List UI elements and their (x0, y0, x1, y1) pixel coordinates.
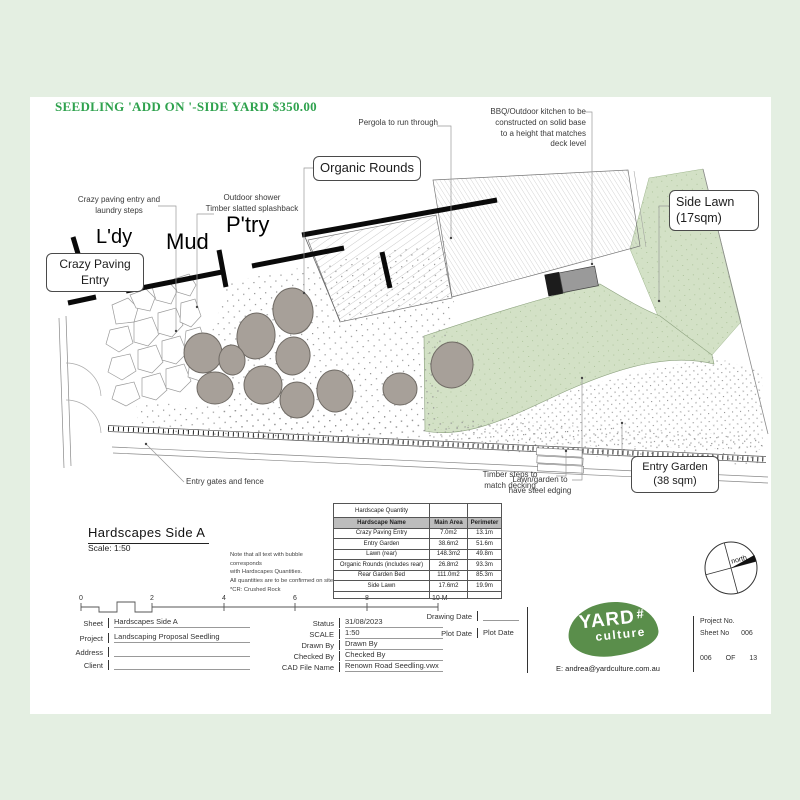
room-label-laundry: L'dy (96, 226, 132, 249)
field-cad-file: CAD File NameRenown Road Seedling.vwx (278, 661, 443, 672)
hardscape-quantity-table: Hardscape Quantity Hardscape Name Main A… (333, 503, 502, 599)
field-drawing-date: Drawing Date (422, 610, 519, 621)
field-client: Client (59, 659, 250, 670)
sheet-title: Hardscapes Side A (88, 525, 209, 544)
cell-perimeter: 13.1m (468, 528, 502, 539)
cell-area: 7.0m2 (430, 528, 468, 539)
table-col-header: Perimeter (468, 518, 502, 529)
field-value: Checked By (345, 650, 443, 661)
screenshot-stage: 0 2 4 6 8 10 M north SEEDLING 'ADD ON '-… (0, 0, 800, 800)
field-plot-date: Plot DatePlot Date (422, 628, 519, 638)
sheet-count-current: 006 (700, 655, 712, 662)
bubble-organic-rounds: Organic Rounds (313, 156, 421, 181)
cell-perimeter: 51.6m (468, 539, 502, 550)
field-value (114, 646, 250, 657)
cell-perimeter: 49.8m (468, 549, 502, 560)
table-row-empty (334, 591, 502, 598)
sheet-no-value: 006 (741, 630, 753, 637)
cell-area: 38.6m2 (430, 539, 468, 550)
field-value: Plot Date (483, 628, 519, 638)
field-address: Address (59, 646, 250, 657)
field-divider (339, 629, 340, 639)
field-divider (339, 662, 340, 672)
cell-perimeter: 93.3m (468, 560, 502, 571)
field-divider (339, 618, 340, 628)
sheet-count-row: 006 OF 13 (700, 655, 757, 662)
scale-tick-4: 4 (222, 595, 226, 602)
contact-email: E: andrea@yardculture.com.au (556, 664, 660, 673)
cell-area: 148.3m2 (430, 549, 468, 560)
titleblock-divider (693, 616, 694, 672)
field-divider (108, 618, 109, 628)
field-divider (108, 633, 109, 643)
cell-name: Crazy Paving Entry (334, 528, 430, 539)
scale-tick-2: 2 (150, 595, 154, 602)
room-label-pantry: P'try (226, 212, 269, 238)
cell-area: 111.0m2 (430, 570, 468, 581)
room-label-mud: Mud (166, 229, 209, 255)
field-divider (339, 640, 340, 650)
field-label: SCALE (278, 630, 334, 639)
annotation-outdoor-shower: Outdoor shower Timber slatted splashback (198, 193, 306, 215)
table-title-spacer (468, 504, 502, 518)
bubble-entry-garden: Entry Garden (38 sqm) (631, 456, 719, 493)
table-title: Hardscape Quantity (334, 504, 430, 518)
cell-perimeter: 19.9m (468, 581, 502, 592)
bubble-side-lawn: Side Lawn (17sqm) (669, 190, 759, 231)
table-row: Rear Garden Bed 111.0m2 85.3m (334, 570, 502, 581)
table-title-spacer (430, 504, 468, 518)
cell-name: Side Lawn (334, 581, 430, 592)
table-row: Lawn (rear) 148.3m2 49.8m (334, 549, 502, 560)
plan-notes: Note that all text with bubble correspon… (230, 551, 334, 594)
field-label: CAD File Name (278, 663, 334, 672)
annotation-crazy-paving: Crazy paving entry and laundry steps (70, 195, 168, 217)
field-label: Project (59, 634, 103, 643)
field-divider (339, 651, 340, 661)
cell-area: 17.6m2 (430, 581, 468, 592)
field-divider (477, 611, 478, 621)
sheet-count-total: 13 (749, 655, 757, 662)
field-divider (108, 647, 109, 657)
field-drawn-by: Drawn ByDrawn By (278, 639, 443, 650)
field-value: Landscaping Proposal Seedling (114, 632, 250, 643)
logo-hash-icon: # (636, 606, 646, 622)
field-value: Renown Road Seedling.vwx (345, 661, 443, 672)
field-value: Drawn By (345, 639, 443, 650)
field-value (114, 659, 250, 670)
page-title: SEEDLING 'ADD ON '-SIDE YARD $350.00 (55, 99, 317, 115)
bubble-crazy-paving-entry: Crazy Paving Entry (46, 253, 144, 292)
cell-name: Lawn (rear) (334, 549, 430, 560)
field-label: Sheet (59, 619, 103, 628)
table-row: Entry Garden 38.6m2 51.6m (334, 539, 502, 550)
project-no-label: Project No. (700, 618, 735, 625)
field-label: Drawn By (278, 641, 334, 650)
cell-area: 26.8m2 (430, 560, 468, 571)
annotation-bbq: BBQ/Outdoor kitchen to be constructed on… (478, 107, 586, 150)
field-label: Status (278, 619, 334, 628)
field-value (483, 610, 519, 621)
scale-tick-6: 6 (293, 595, 297, 602)
annotation-steel-edging: Lawn/garden to have steel edging (504, 475, 576, 497)
field-label: Address (59, 648, 103, 657)
table-row: Side Lawn 17.6m2 19.9m (334, 581, 502, 592)
field-label: Checked By (278, 652, 334, 661)
field-label: Drawing Date (422, 612, 472, 621)
table-col-header: Hardscape Name (334, 518, 430, 529)
field-checked-by: Checked ByChecked By (278, 650, 443, 661)
field-sheet: SheetHardscapes Side A (59, 617, 250, 628)
field-label: Client (59, 661, 103, 670)
field-divider (108, 660, 109, 670)
field-divider (477, 628, 478, 638)
field-value: Hardscapes Side A (114, 617, 250, 628)
scale-tick-0: 0 (79, 595, 83, 602)
table-col-header: Main Area (430, 518, 468, 529)
sheet-no-row: Sheet No 006 (700, 630, 753, 637)
annotation-pergola: Pergola to run through (342, 118, 438, 129)
table-row: Organic Rounds (includes rear) 26.8m2 93… (334, 560, 502, 571)
sheet-count-of: OF (726, 655, 736, 662)
field-project: ProjectLandscaping Proposal Seedling (59, 632, 250, 643)
cell-name: Rear Garden Bed (334, 570, 430, 581)
sheet-no-label: Sheet No (700, 630, 729, 637)
cell-name: Organic Rounds (includes rear) (334, 560, 430, 571)
annotation-entry-gates: Entry gates and fence (186, 477, 264, 488)
field-label: Plot Date (422, 629, 472, 638)
sheet-scale: Scale: 1:50 (88, 543, 131, 553)
field-scale: SCALE1:50 (278, 628, 443, 639)
titleblock-divider (527, 607, 528, 673)
cell-name: Entry Garden (334, 539, 430, 550)
field-status: Status31/08/2023 (278, 617, 443, 628)
north-compass: north (699, 536, 763, 600)
cell-perimeter: 85.3m (468, 570, 502, 581)
table-row: Crazy Paving Entry 7.0m2 13.1m (334, 528, 502, 539)
